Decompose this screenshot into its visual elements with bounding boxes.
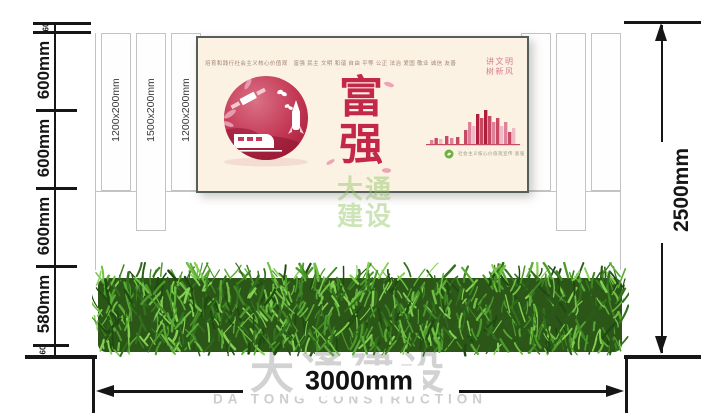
dimension-line <box>114 390 243 393</box>
poster-slogan: 讲文明 树新风 <box>486 57 515 77</box>
extension-line-left <box>92 357 95 413</box>
watermark-center: 大通建设 <box>337 176 397 230</box>
signage-construction-drawing: 1200x200mm 1500x200mm 1200x200mm 培育和践行社会… <box>0 0 720 420</box>
poster-headline: 富强 <box>336 74 386 168</box>
dim-label-600-1: 600mm <box>34 41 54 100</box>
dim-label-580: 580mm <box>34 275 54 334</box>
tick <box>36 109 77 112</box>
hedge-plants <box>92 262 629 362</box>
arrowhead-right <box>606 385 624 397</box>
leaf-badge-icon <box>444 149 454 159</box>
papercut-emblem-icon <box>218 72 314 172</box>
poster-footnote: 社会主义核心价值观宣传 富强 <box>458 151 525 157</box>
extension-line-right <box>625 357 628 413</box>
city-skyline-graphic <box>426 108 524 148</box>
petal-decoration <box>382 167 392 174</box>
core-values-poster: 培育和践行社会主义核心价值观 富强 民主 文明 和谐 自由 平等 公正 法治 爱… <box>196 36 529 193</box>
column-size-label: 1500x200mm <box>145 78 157 142</box>
arrowhead-down <box>655 336 667 354</box>
values-strip-text: 培育和践行社会主义核心价值观 富强 民主 文明 和谐 自由 平等 公正 法治 爱… <box>205 59 456 67</box>
wall-left-edge <box>95 33 96 270</box>
dim-label-60-bottom: 60 <box>39 346 48 355</box>
dim-label-600-2: 600mm <box>34 119 54 178</box>
ground-line <box>25 355 97 359</box>
dimension-line <box>661 25 663 142</box>
column-size-label: 1200x200mm <box>180 78 192 142</box>
tick <box>624 355 701 359</box>
dim-label-600-3: 600mm <box>34 197 54 256</box>
slogan-line-1: 讲文明 <box>486 57 515 67</box>
slogan-line-2: 树新风 <box>486 67 515 77</box>
tick <box>36 265 77 268</box>
dim-label-60-top: 60 <box>42 23 51 32</box>
column-size-label: 1200x200mm <box>110 78 122 142</box>
arrowhead-left <box>96 385 114 397</box>
tick <box>36 187 77 190</box>
petal-decoration <box>326 159 336 166</box>
column-right-3 <box>591 33 621 191</box>
dim-label-2500: 2500mm <box>670 148 694 232</box>
arrowhead-up <box>655 23 667 41</box>
column-right-2 <box>556 33 586 231</box>
dimension-line <box>459 390 606 393</box>
dim-label-3000: 3000mm <box>295 366 423 397</box>
